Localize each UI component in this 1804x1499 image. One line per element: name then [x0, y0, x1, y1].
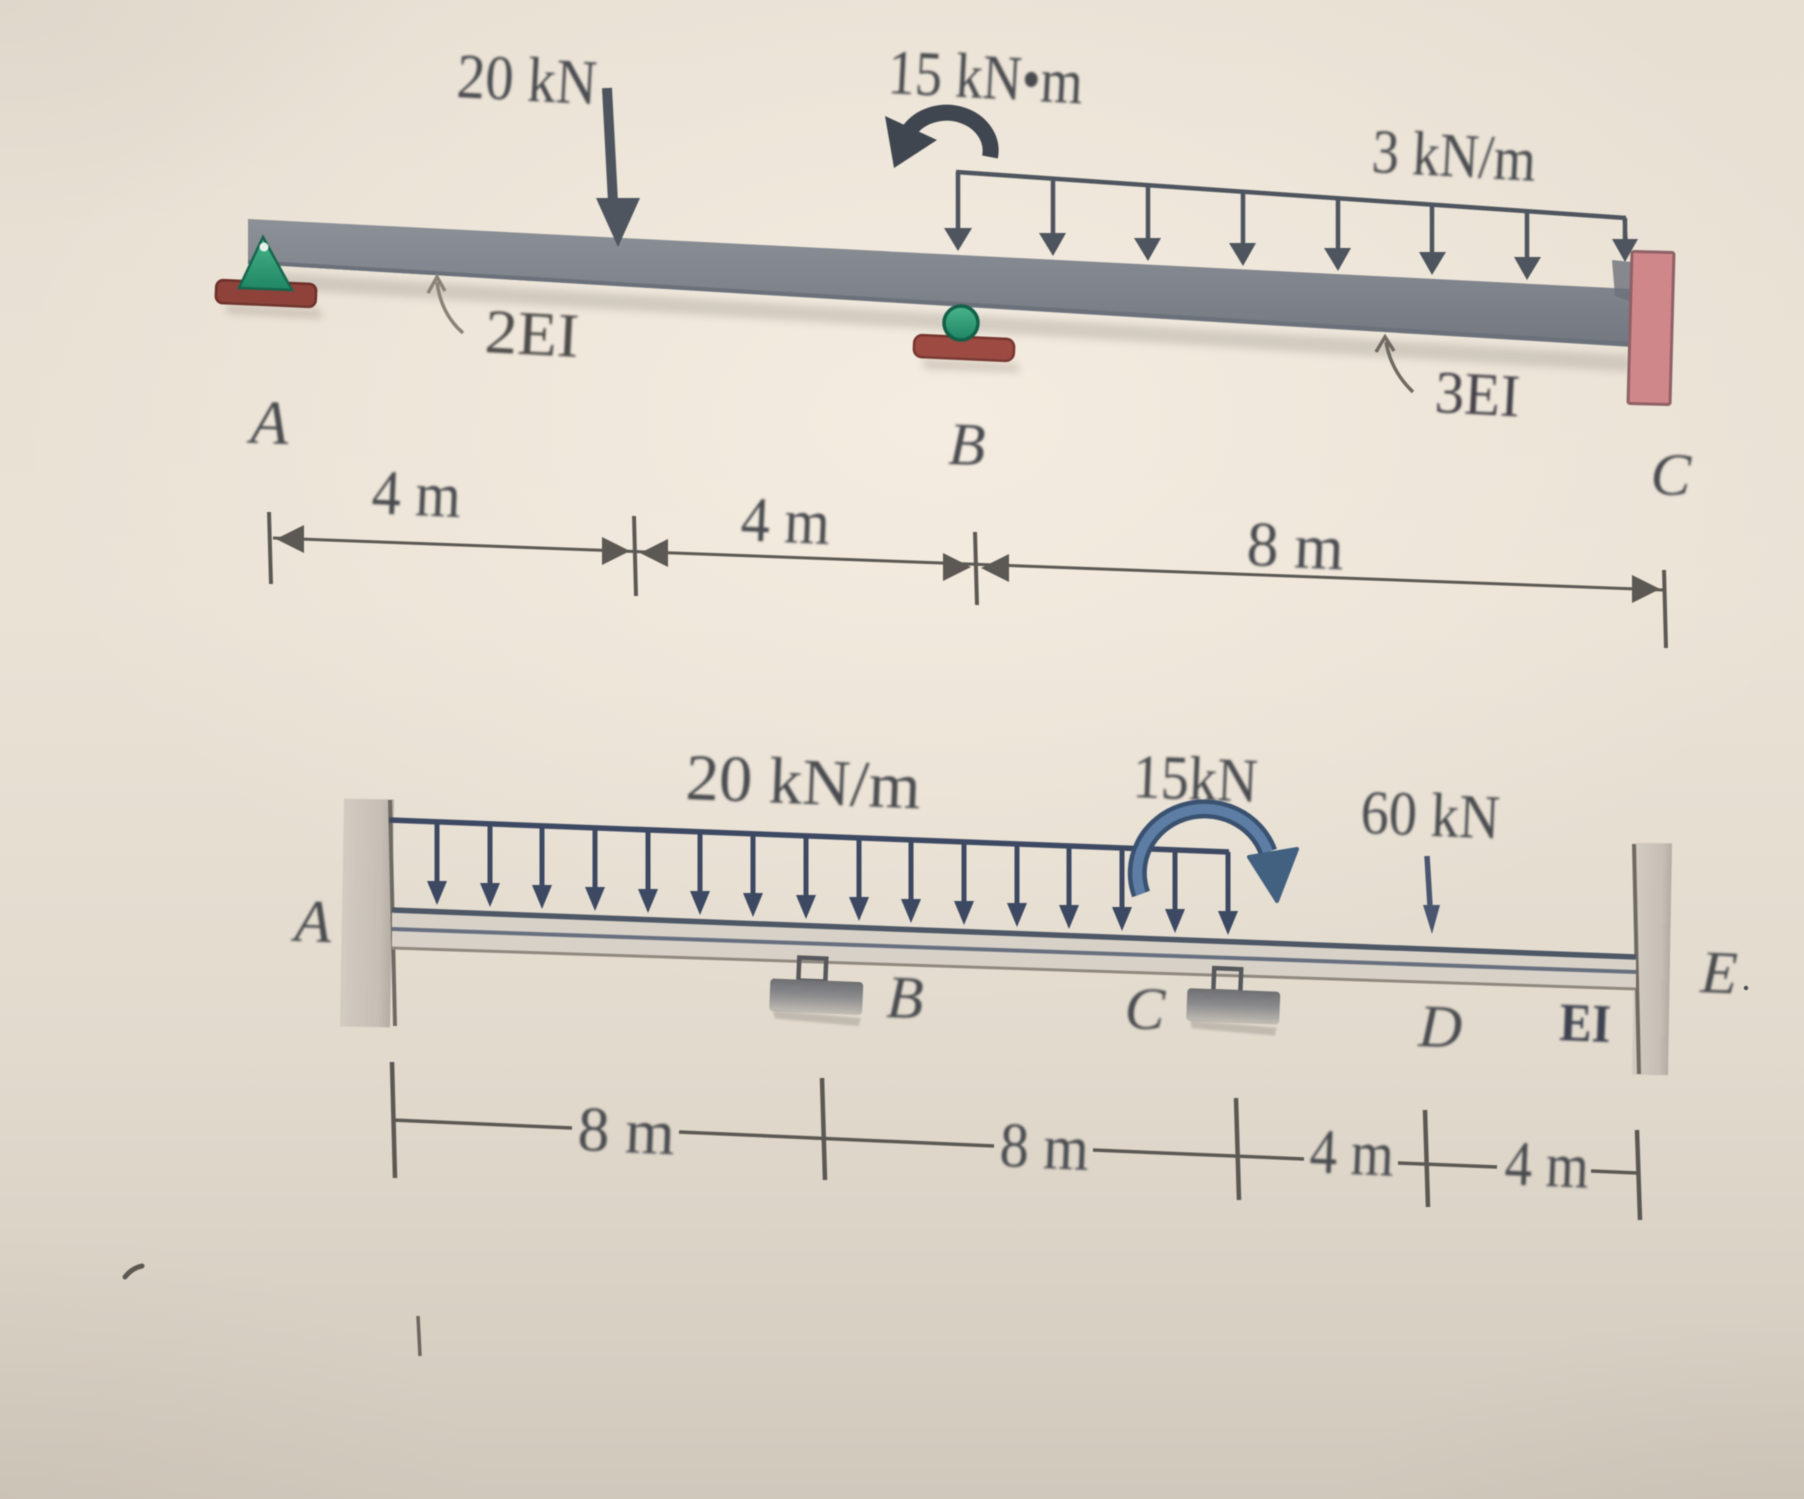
svg-text:E: E [1698, 939, 1738, 1006]
svg-text:4 m: 4 m [1308, 1115, 1395, 1189]
svg-text:3 kN/m: 3 kN/m [1370, 118, 1537, 194]
svg-text:EI: EI [1559, 992, 1612, 1054]
svg-text:3EI: 3EI [1433, 359, 1521, 429]
svg-text:A: A [289, 888, 333, 956]
svg-text:60 kN: 60 kN [1359, 779, 1501, 853]
svg-text:D: D [1416, 993, 1463, 1061]
svg-text:2EI: 2EI [483, 298, 580, 371]
svg-text:C: C [1650, 441, 1693, 508]
svg-text:15 kN•m: 15 kN•m [886, 36, 1084, 117]
svg-text:C: C [1123, 975, 1167, 1043]
svg-text:8 m: 8 m [998, 1109, 1090, 1184]
svg-text:8 m: 8 m [576, 1093, 676, 1168]
svg-text:4 m: 4 m [739, 483, 831, 558]
svg-text:4 m: 4 m [1503, 1127, 1590, 1201]
svg-text:B: B [948, 411, 987, 478]
svg-text:20 kN: 20 kN [455, 40, 599, 118]
svg-text:B: B [885, 964, 924, 1031]
svg-text:8 m: 8 m [1245, 508, 1345, 583]
svg-text:4 m: 4 m [370, 456, 462, 531]
svg-text:20 kN/m: 20 kN/m [684, 741, 922, 823]
svg-text:A: A [246, 389, 291, 458]
